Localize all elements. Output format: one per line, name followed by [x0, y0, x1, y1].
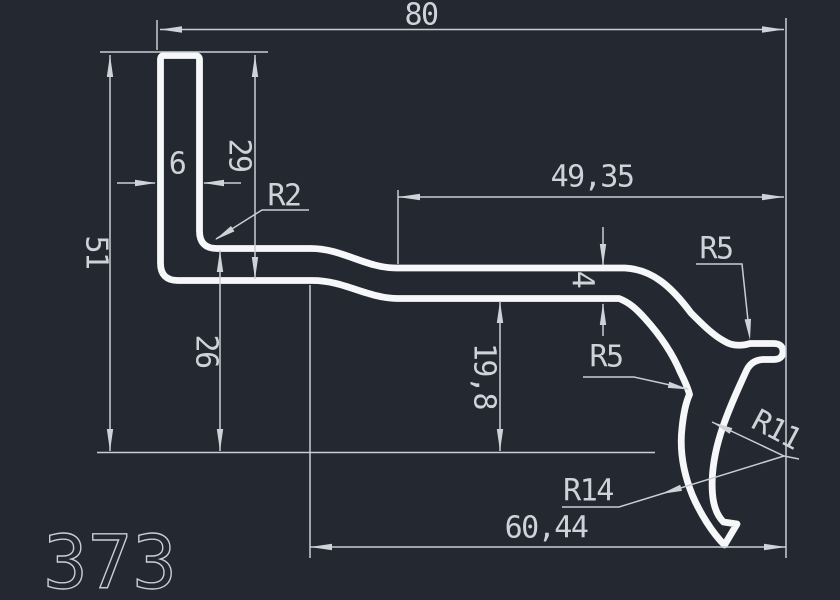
dim-r5-left-text: R5: [589, 340, 622, 375]
arrow-80-right-icon: [762, 26, 784, 32]
dim-r5-right-leader: [696, 264, 749, 330]
arrow-6-right-icon: [203, 180, 224, 186]
arrow-4-bottom-icon: [600, 303, 606, 325]
dim-r2-leader: [216, 210, 309, 239]
cad-drawing-canvas: 80 51 6 29 R2 49,35 4 19,8 26 R5 R5 R11 …: [0, 0, 840, 600]
arrow-29-top-icon: [252, 55, 258, 77]
arrow-6044-right-icon: [764, 544, 786, 550]
arrow-6-left-icon: [135, 180, 156, 186]
arrow-r5-right-icon: [745, 319, 751, 340]
dim-r5-right-text: R5: [699, 232, 732, 267]
dim-r2-text: R2: [267, 179, 300, 214]
dim-80-text: 80: [404, 0, 438, 33]
arrow-r14-icon: [661, 485, 682, 494]
arrow-26-top-icon: [217, 250, 223, 272]
arrow-4935-right-icon: [762, 194, 784, 200]
arrow-6044-left-icon: [310, 544, 332, 550]
dim-6-text: 6: [169, 147, 186, 182]
arrow-80-left-icon: [160, 26, 182, 32]
dim-198-text: 19,8: [467, 343, 502, 410]
arrow-29-bottom-icon: [252, 257, 258, 279]
dim-4-text: 4: [565, 271, 600, 288]
arrow-51-bottom-icon: [107, 429, 113, 451]
cad-viewport: 80 51 6 29 R2 49,35 4 19,8 26 R5 R5 R11 …: [0, 0, 840, 600]
part-number-text: 373: [43, 520, 177, 600]
arrow-26-bottom-icon: [217, 429, 223, 451]
dimension-texts: 80 51 6 29 R2 49,35 4 19,8 26 R5 R5 R11 …: [79, 0, 807, 546]
arrow-4-top-icon: [600, 244, 606, 266]
dim-29-text: 29: [222, 138, 257, 172]
dim-51-text: 51: [79, 235, 114, 269]
profile-outline: [161, 56, 784, 546]
dim-r14-text: R14: [563, 474, 613, 509]
dim-26-text: 26: [189, 334, 224, 368]
dim-r11-text: R11: [746, 403, 807, 457]
arrow-4935-left-icon: [398, 194, 420, 200]
arrow-198-top-icon: [497, 301, 503, 323]
dim-4935-text: 49,35: [551, 160, 634, 195]
arrow-r2-icon: [215, 226, 234, 240]
dimension-lines: [110, 30, 799, 548]
dim-6044-text: 60,44: [505, 511, 588, 546]
arrow-198-bottom-icon: [497, 429, 503, 451]
arrow-51-top-icon: [107, 55, 113, 77]
